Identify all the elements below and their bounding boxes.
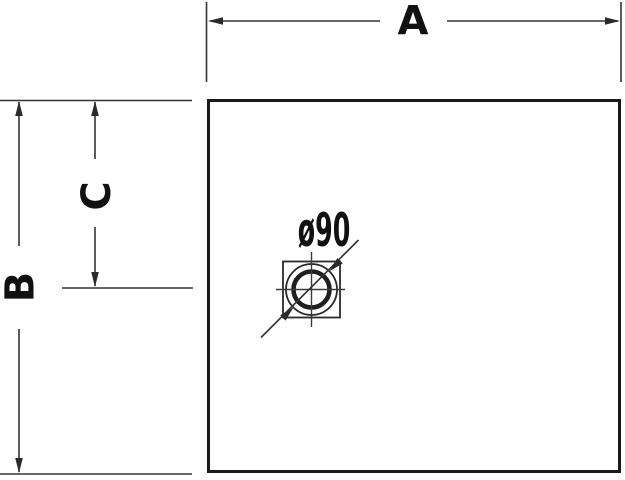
tray-outline — [209, 101, 620, 472]
dim-c-label: C — [74, 181, 120, 210]
dim-a-arrow-left-icon — [208, 17, 223, 25]
drain-diameter-label: ø90 — [298, 204, 351, 257]
dim-a-arrow-right-icon — [605, 17, 620, 25]
dim-b-arrow-bottom-icon — [15, 458, 23, 473]
dim-c-arrow-bottom-icon — [91, 272, 99, 287]
dim-c-arrow-top-icon — [91, 101, 99, 116]
technical-drawing-page: A B C ø90 — [0, 0, 625, 480]
dim-a-label: A — [398, 0, 429, 45]
dim-b-arrow-top-icon — [15, 101, 23, 116]
drain-symbol: ø90 — [261, 204, 359, 338]
dimension-drawing: A B C ø90 — [0, 0, 625, 480]
dim-b-label: B — [0, 272, 44, 303]
